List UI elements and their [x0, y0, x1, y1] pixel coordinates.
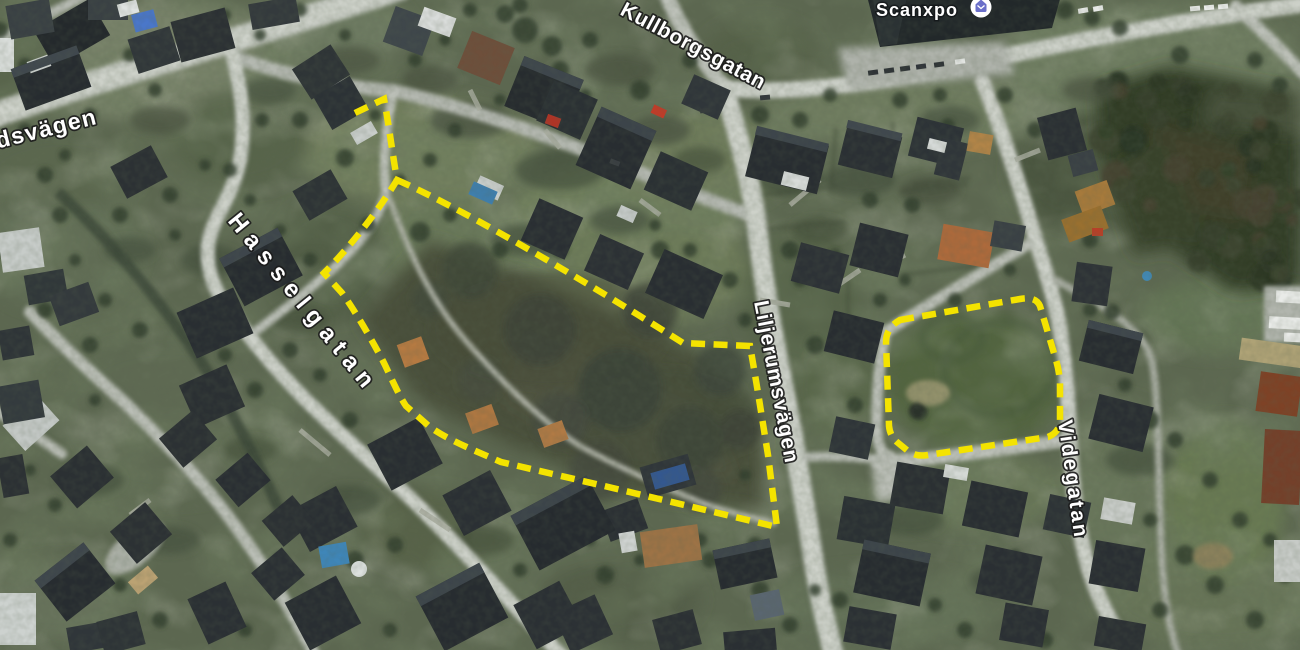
svg-text:Scanxpo: Scanxpo: [876, 0, 958, 20]
